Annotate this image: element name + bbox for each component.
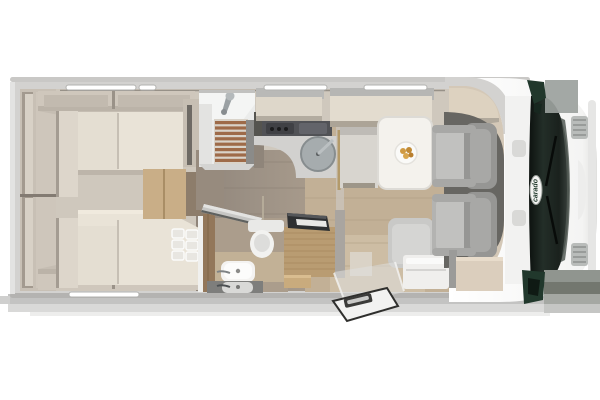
svg-text:carado: carado: [533, 178, 540, 202]
